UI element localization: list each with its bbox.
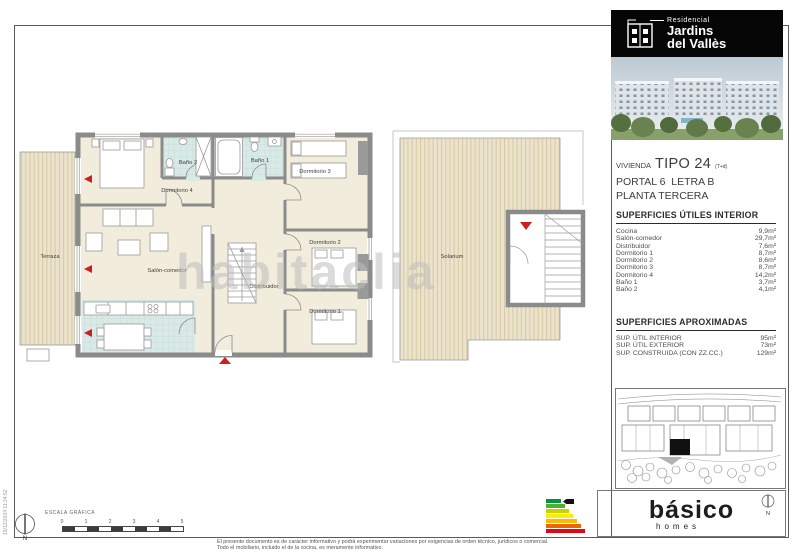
floor-plans: Terraza Dormitorio 4 Baño 2 Baño 1 Dormi… [0,0,611,555]
unit-info: VIVIENDA TIPO 24 (T+d) PORTAL 6 LETRA B … [616,156,727,202]
brand-name: básico [598,498,785,523]
site-key-plan [615,388,786,489]
label-bano-1: Baño 1 [251,158,269,164]
energy-bar [546,524,581,528]
table-row: Dormitorio 18,7m² [616,250,776,257]
plan-sheet: Terraza Dormitorio 4 Baño 2 Baño 1 Dormi… [0,0,800,555]
basico-homes-logo: básico homes N [597,490,786,537]
energy-bar [546,514,573,518]
developer-logo: Residencial Jardins del Vallès [611,10,783,57]
scale-label: ESCALA GRÁFICA [45,510,95,516]
interior-table-title: SUPERFICIES ÚTILES INTERIOR [616,210,776,224]
planta-label: PLANTA TERCERA [616,190,727,202]
table-row: Distribuidor7,6m² [616,243,776,250]
energy-bar [546,529,585,533]
table-row: Dormitorio 414,2m² [616,272,776,279]
label-distribuidor: Distribuidor [249,284,278,290]
table-row: Dormitorio 38,7m² [616,264,776,271]
entrance-marker [219,357,231,364]
logo-residencial: Residencial [667,17,726,24]
highlighted-unit [670,439,690,455]
label-dormitorio-1: Dormitorio 1 [309,309,341,315]
energy-bar [546,519,577,523]
vivienda-label: VIVIENDA [616,161,651,170]
label-salon-comedor: Salón-comedor [147,268,186,274]
energy-bar [546,504,565,508]
disclaimer: El presente documento es de carácter inf… [217,539,548,552]
building-logo-icon [623,17,657,51]
plot-timestamp: 19/12/2024 11:24:52 [3,489,9,535]
table-row: SUP. ÚTIL EXTERIOR73m² [616,342,776,349]
approx-surfaces-table: SUPERFICIES APROXIMADAS SUP. ÚTIL INTERI… [616,317,776,357]
table-row: Dormitorio 28,6m² [616,257,776,264]
label-bano-2: Baño 2 [179,160,197,166]
north-compass-icon: N [12,511,40,543]
energy-bar [546,509,569,513]
energy-rating-label [546,499,601,539]
table-row: Cocina9,9m² [616,228,776,235]
table-row: Baño 13,7m² [616,279,776,286]
label-dormitorio-3: Dormitorio 3 [299,169,331,175]
solarium-plan [393,131,583,362]
label-dormitorio-2: Dormitorio 2 [309,240,341,246]
approx-table-title: SUPERFICIES APROXIMADAS [616,317,776,331]
label-solarium: Solarium [441,254,464,260]
svg-text:N: N [766,511,770,517]
svg-text:N: N [23,536,27,542]
table-row: SUP. CONSTRUIDA (CON ZZ.CC.)129m² [616,350,776,357]
label-dormitorio-4: Dormitorio 4 [161,188,193,194]
energy-bar [546,499,561,503]
interior-surfaces-table: SUPERFICIES ÚTILES INTERIOR Cocina9,9m² … [616,210,776,294]
brand-sub: homes [598,522,785,531]
table-row: Baño 24,1m² [616,286,776,293]
tipo-note: (T+d) [715,164,727,170]
building-render [611,57,783,140]
graphic-scale: 0 1 2 3 4 5 [62,519,183,533]
tipo-label: TIPO 24 [655,156,711,172]
label-terraza: Terraza [40,254,60,260]
table-row: Salón-comedor29,7m² [616,235,776,242]
logo-del-valles: del Vallès [667,37,726,50]
portal-label: PORTAL 6 LETRA B [616,176,727,188]
north-compass-icon: N [760,493,776,517]
